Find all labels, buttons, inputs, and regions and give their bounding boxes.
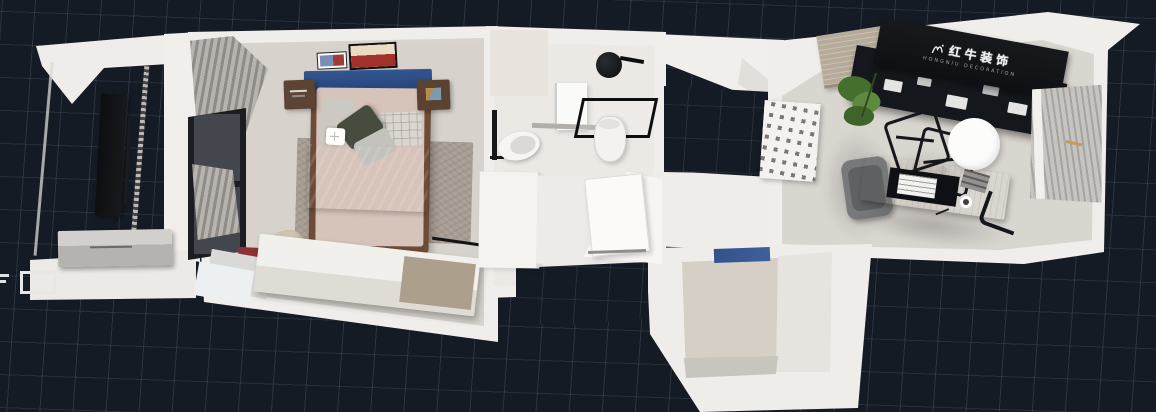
light-cross-icon <box>330 136 339 137</box>
wall-art-small[interactable] <box>318 52 347 68</box>
canvas-glyph-bar <box>0 280 6 283</box>
heater-top <box>598 119 620 129</box>
ceiling-light-marker[interactable] <box>326 128 346 146</box>
bathroom-wall-patch <box>490 30 548 96</box>
roller-blind[interactable] <box>1026 85 1106 206</box>
sideboard-handle <box>90 246 132 249</box>
wall-art-large[interactable] <box>350 44 395 68</box>
nightstand-left[interactable] <box>284 79 316 109</box>
floorplan-viewport[interactable]: 红牛装饰 HONGNIU DECORATION <box>0 0 1156 412</box>
nightstand-right[interactable] <box>416 79 450 110</box>
nightstand-decor <box>292 95 305 97</box>
water-heater[interactable] <box>594 116 626 162</box>
bull-logo-icon <box>930 40 946 56</box>
blind-frame <box>1032 89 1045 199</box>
cooktop-item <box>1007 102 1028 116</box>
dresser-wood-top <box>399 256 476 310</box>
towel-rack[interactable] <box>492 110 497 160</box>
round-side-table[interactable] <box>948 118 1000 170</box>
wardrobe-panel-b[interactable] <box>536 176 586 265</box>
canvas-glyph-bar <box>0 274 9 277</box>
rain-shower-head[interactable] <box>596 52 622 78</box>
wardrobe-panel-a[interactable] <box>478 171 541 268</box>
coffee-liquid <box>963 199 969 205</box>
cooktop-item <box>945 94 968 110</box>
coffee-cup[interactable] <box>958 194 974 210</box>
cooktop-item <box>917 77 932 87</box>
blind-wand <box>1066 140 1082 147</box>
grey-throw-blanket <box>307 144 429 212</box>
nightstand-photo <box>426 88 441 101</box>
curtain-panel-lower[interactable] <box>192 164 240 240</box>
sideboard[interactable] <box>58 229 173 267</box>
open-door[interactable] <box>584 173 650 257</box>
toilet-seat <box>508 133 538 157</box>
nightstand-decor <box>290 90 307 93</box>
canvas-glyph-rect <box>20 271 56 294</box>
wall-art-small-canvas <box>320 54 345 66</box>
shoe-lattice[interactable] <box>759 100 820 182</box>
blue-doormat[interactable] <box>714 247 770 263</box>
